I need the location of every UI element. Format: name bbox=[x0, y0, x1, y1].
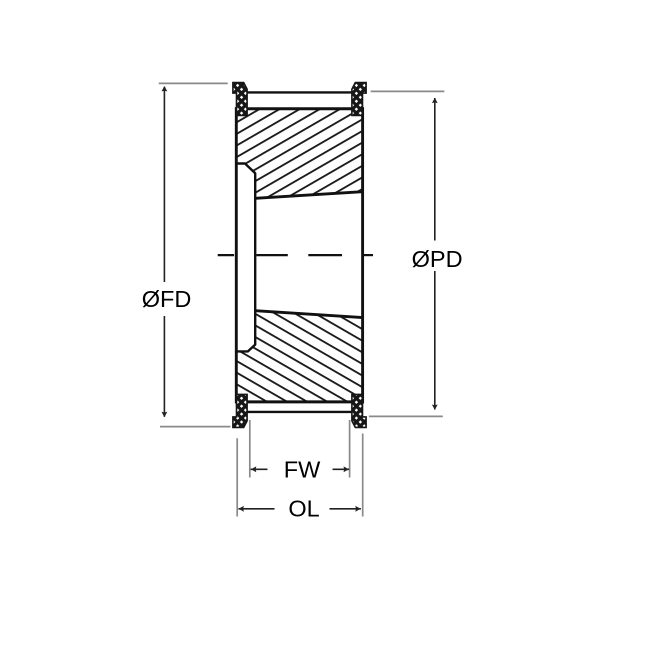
svg-text:OL: OL bbox=[288, 496, 319, 522]
svg-text:ØFD: ØFD bbox=[142, 286, 192, 312]
svg-text:FW: FW bbox=[284, 457, 321, 483]
svg-text:ØPD: ØPD bbox=[412, 246, 463, 272]
